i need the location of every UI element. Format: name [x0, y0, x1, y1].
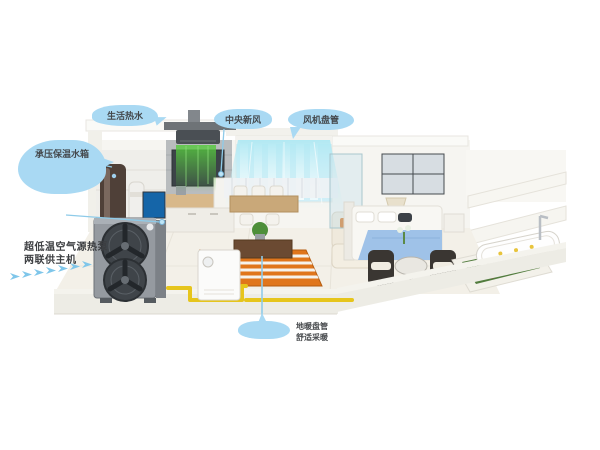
hydro-module — [198, 250, 240, 300]
outdoor-unit-label-line2: 两联供主机 — [24, 254, 108, 267]
outdoor-unit-label: 超低温空气源热泵 两联供主机 — [24, 241, 108, 267]
callout-water-tank-label: 承压保温水箱 — [35, 147, 89, 160]
callout-hot-water-label: 生活热水 — [107, 109, 143, 122]
leader-dot-unit — [160, 220, 165, 225]
callout-fan-coil: 风机盘管 — [288, 109, 354, 130]
callout-fan-coil-label: 风机盘管 — [303, 113, 339, 126]
heat-pump-house-diagram: 生活热水 承压保温水箱 中央新风 风机盘管 超低温空气源热泵 两联供主机 地暖盘… — [0, 0, 600, 450]
floor-heating-label-line1: 地暖盘管 — [296, 322, 328, 333]
callout-fresh-air-label: 中央新风 — [225, 113, 261, 126]
green-airflow — [176, 145, 216, 192]
leader-dot-kitchen — [219, 172, 224, 177]
callout-water-tank-tail — [102, 158, 114, 168]
floor-heating-label-line2: 舒适采暖 — [296, 333, 328, 344]
house-illustration — [0, 0, 600, 450]
callout-fresh-air: 中央新风 — [214, 109, 272, 129]
callout-floor-heating-pointer — [238, 321, 290, 339]
floor-heating-label: 地暖盘管 舒适采暖 — [296, 322, 328, 344]
callout-floor-heating-tail — [258, 313, 267, 323]
callout-hot-water: 生活热水 — [92, 105, 158, 126]
callout-fan-coil-tail — [290, 127, 301, 139]
outdoor-unit-label-line1: 超低温空气源热泵 — [24, 241, 108, 254]
callout-water-tank: 承压保温水箱 — [18, 140, 106, 194]
